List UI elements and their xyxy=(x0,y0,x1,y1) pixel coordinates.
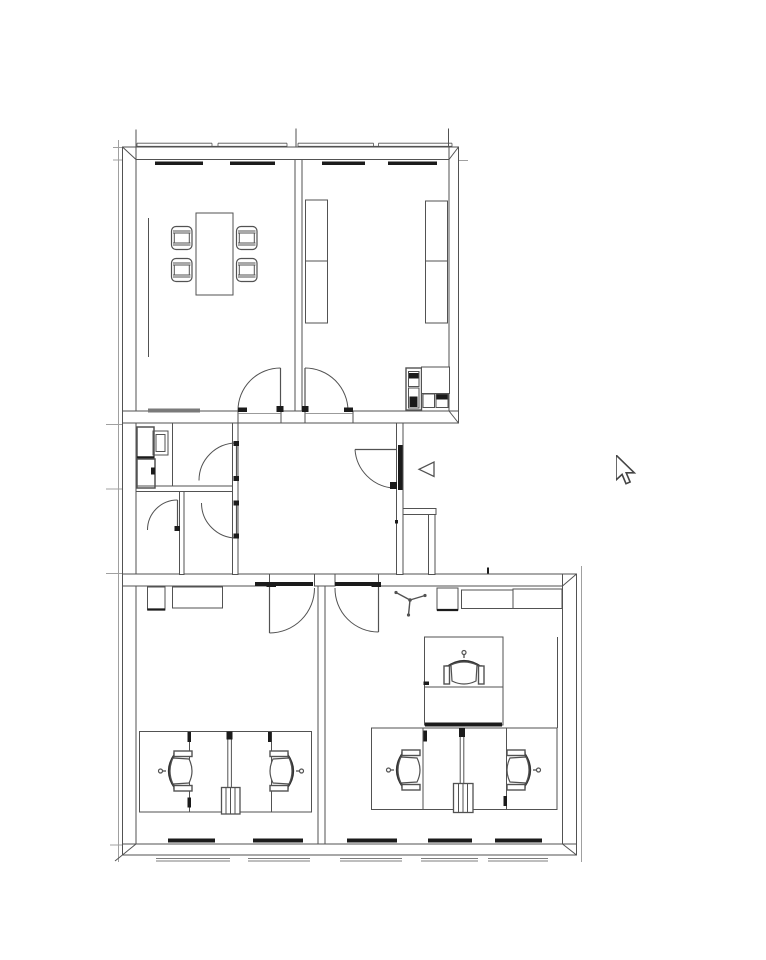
window-bar xyxy=(347,839,397,843)
cabinet xyxy=(462,590,514,609)
door-swing xyxy=(270,588,315,633)
cabinet xyxy=(437,588,458,610)
wall-right-upper xyxy=(449,147,459,423)
window-bar xyxy=(495,839,542,843)
meeting-chair xyxy=(172,259,193,282)
entry-niche-wall xyxy=(403,509,436,515)
wall-left xyxy=(123,147,137,855)
meeting-chair xyxy=(172,227,193,250)
window-bar xyxy=(388,162,437,166)
app-canvas[interactable] xyxy=(0,0,766,960)
meeting-chair xyxy=(237,227,258,250)
entrance-arrow xyxy=(419,462,434,477)
sideboard xyxy=(148,409,200,413)
cabinet xyxy=(148,587,166,610)
meeting-table xyxy=(196,213,233,295)
entrance-door-swing xyxy=(355,450,393,489)
wall-divider-upper-rooms xyxy=(295,160,302,412)
wall-divider-lower-rooms xyxy=(318,586,325,844)
markers xyxy=(419,462,434,477)
entrance-door-panel xyxy=(398,445,403,490)
kitchen-counter xyxy=(137,427,154,458)
window-bar xyxy=(168,839,215,843)
wall-right-lower xyxy=(563,574,577,855)
wall-top xyxy=(123,147,459,160)
window-bar xyxy=(322,162,365,166)
wall-bottom xyxy=(123,844,577,855)
door-swing xyxy=(305,368,348,411)
door-swing xyxy=(335,588,379,632)
door-swing xyxy=(148,500,178,530)
window-bar xyxy=(253,839,303,843)
cabinet xyxy=(513,589,562,609)
window-bar xyxy=(155,162,203,166)
storage-room-furniture xyxy=(306,200,450,410)
meeting-chair xyxy=(237,259,258,282)
window-bar xyxy=(428,839,472,843)
cabinet xyxy=(173,587,223,608)
coat-stand xyxy=(394,591,426,617)
kitchen-fixtures xyxy=(137,427,168,488)
window-bar xyxy=(230,162,275,166)
door-swing xyxy=(238,368,281,411)
floor-plan[interactable] xyxy=(0,0,766,960)
door-swing xyxy=(199,443,237,481)
tall-cabinet xyxy=(426,201,448,323)
door-threshold xyxy=(255,582,313,586)
door-swing xyxy=(202,503,237,538)
